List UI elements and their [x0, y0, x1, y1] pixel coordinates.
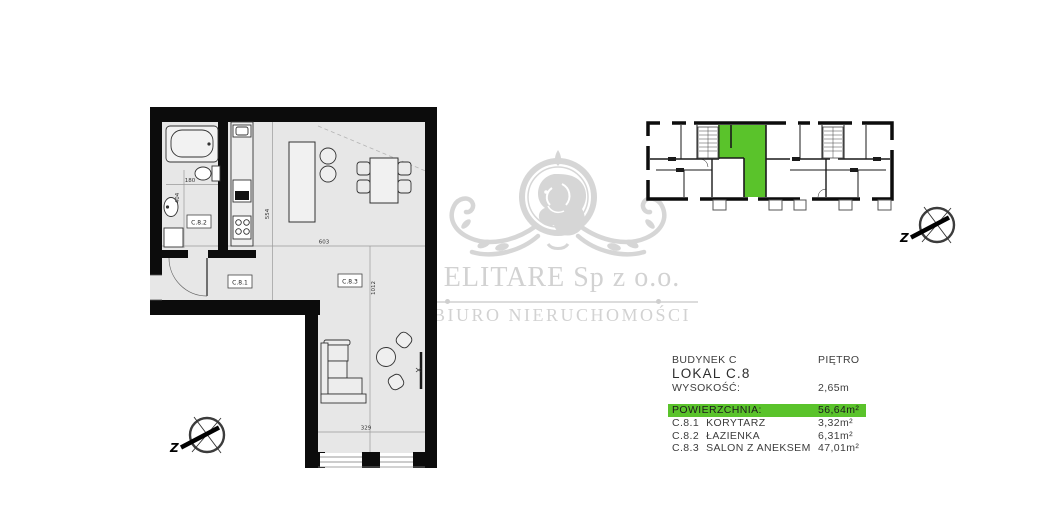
washer-icon	[164, 228, 183, 247]
room-area: 47,01m²	[818, 442, 862, 455]
room-name: KORYTARZ	[706, 417, 765, 429]
page: ELITARE Sp z o.o. BIURO NIERUCHOMOŚCI	[0, 0, 1055, 523]
floor-label: PIĘTRO	[818, 354, 862, 366]
chair-icon	[357, 162, 370, 175]
room-area: 6,31m²	[818, 430, 862, 443]
bar-stool-icon	[320, 148, 336, 164]
terrace-stubs	[713, 200, 891, 210]
room-area-row: C.8.3SALON Z ANEKSEM 47,01m²	[668, 442, 866, 455]
kitchen-sink-icon	[233, 125, 251, 137]
unit-label: LOKAL C.8	[672, 366, 862, 382]
total-area-row: POWIERZCHNIA: 56,64m²	[668, 404, 866, 417]
compass-west-label: Z	[169, 441, 179, 455]
bar-stool-icon	[320, 166, 336, 182]
window	[320, 453, 362, 467]
watermark-company-name: ELITARE Sp z o.o.	[412, 262, 712, 294]
compass-icon: Z	[167, 407, 237, 465]
room-area: 3,32m²	[818, 417, 862, 430]
area-label: POWIERZCHNIA:	[672, 404, 818, 417]
building-floor-row: BUDYNEK C PIĘTRO	[668, 354, 866, 366]
svg-text:C.8.1: C.8.1	[232, 280, 248, 287]
fridge-icon	[233, 180, 251, 202]
chair-icon	[398, 162, 411, 175]
dim-1012: 1012	[371, 281, 377, 295]
room-name: ŁAZIENKA	[706, 430, 760, 442]
watermark-subtitle: BIURO NIERUCHOMOŚCI	[412, 305, 712, 326]
building-label: BUDYNEK C	[672, 354, 818, 366]
dim-603: 603	[319, 240, 330, 246]
kitchen-island	[289, 142, 315, 222]
building-overview-plan	[643, 117, 899, 216]
height-value: 2,65m	[818, 382, 862, 394]
area-value: 56,64m²	[818, 404, 862, 417]
dim-554: 554	[265, 208, 271, 219]
room-code: C.8.1	[672, 417, 699, 430]
height-label: WYSOKOŚĆ:	[672, 382, 818, 394]
room-area-row: C.8.2ŁAZIENKA 6,31m²	[668, 430, 866, 443]
dim-329: 329	[361, 426, 372, 432]
height-row: WYSOKOŚĆ: 2,65m	[668, 382, 866, 394]
compass-west-label: Z	[899, 231, 909, 245]
stove-icon	[233, 216, 251, 239]
compass-icon: Z	[897, 197, 967, 255]
room-area-row: C.8.1KORYTARZ 3,32m²	[668, 417, 866, 430]
chair-icon	[357, 180, 370, 193]
room-name: SALON Z ANEKSEM	[706, 442, 811, 454]
coffee-table-icon	[377, 348, 396, 367]
entrance-opening	[150, 275, 162, 300]
chair-icon	[398, 180, 411, 193]
bathtub-icon	[166, 126, 218, 162]
room-label-c81: C.8.1	[228, 275, 252, 288]
watermark-divider	[428, 299, 698, 304]
svg-text:C.8.2: C.8.2	[191, 220, 207, 227]
room-code: C.8.3	[672, 442, 699, 455]
svg-text:C.8.3: C.8.3	[342, 279, 358, 286]
dim-180: 180	[185, 178, 196, 184]
dim-404: 404	[175, 192, 181, 203]
dining-table	[370, 158, 398, 203]
room-label-c82: C.8.2	[187, 215, 211, 228]
room-code: C.8.2	[672, 430, 699, 443]
toilet-icon	[195, 166, 220, 181]
room-label-c83: C.8.3	[338, 274, 362, 287]
window	[380, 453, 413, 467]
unit-info-panel: BUDYNEK C PIĘTRO LOKAL C.8 WYSOKOŚĆ: 2,6…	[668, 354, 866, 455]
